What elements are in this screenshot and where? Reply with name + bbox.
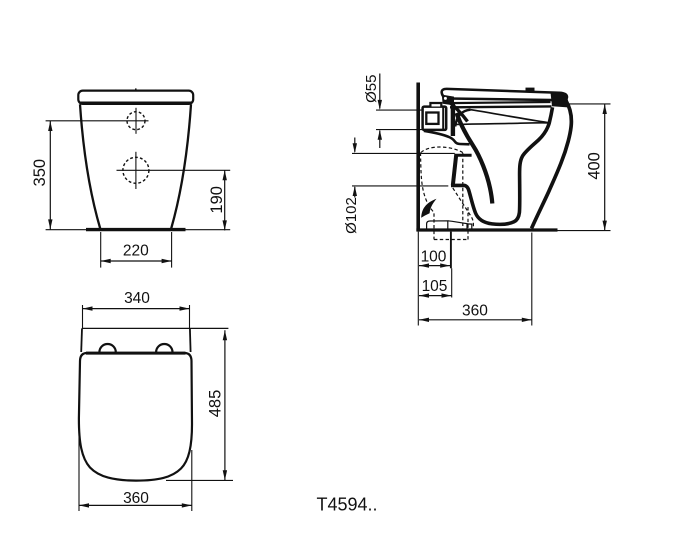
svg-text:100: 100 — [421, 249, 447, 266]
svg-text:Ø55: Ø55 — [363, 75, 380, 103]
svg-text:485: 485 — [207, 390, 225, 418]
svg-text:Ø102: Ø102 — [343, 197, 360, 234]
svg-text:T4594..: T4594.. — [317, 495, 378, 515]
svg-text:350: 350 — [31, 159, 49, 187]
svg-text:220: 220 — [123, 242, 149, 259]
svg-text:400: 400 — [586, 152, 604, 180]
svg-text:190: 190 — [208, 186, 226, 214]
svg-text:360: 360 — [462, 303, 488, 320]
svg-text:360: 360 — [123, 490, 149, 507]
svg-text:105: 105 — [422, 278, 448, 295]
svg-text:340: 340 — [124, 290, 150, 307]
